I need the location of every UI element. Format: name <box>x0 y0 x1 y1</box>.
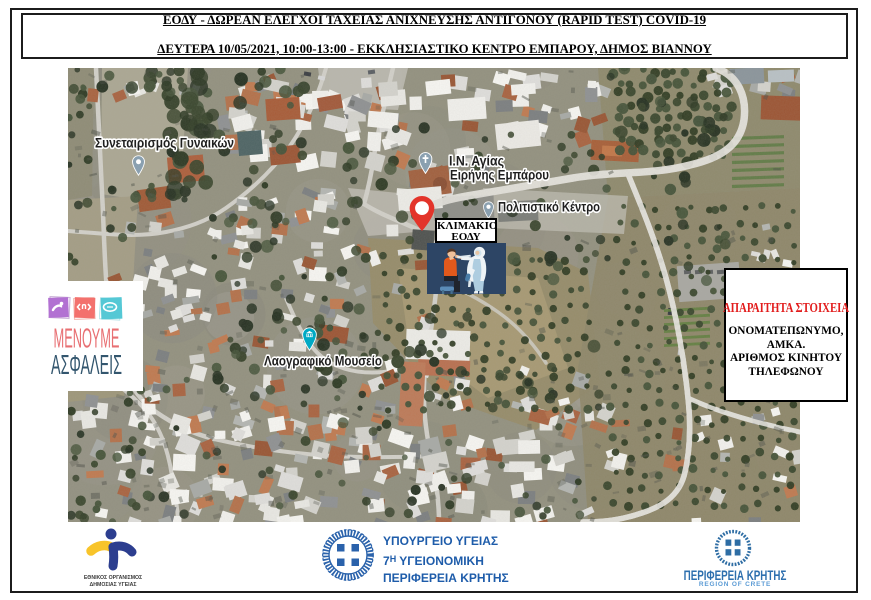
svg-text:ΕΘΝΙΚΟΣ ΟΡΓΑΝΙΣΜΟΣ: ΕΘΝΙΚΟΣ ΟΡΓΑΝΙΣΜΟΣ <box>84 575 142 581</box>
svg-text:ΜΕΝΟΥΜΕ: ΜΕΝΟΥΜΕ <box>54 324 120 351</box>
svg-text:Συνεταιρισμός Γυναικών: Συνεταιρισμός Γυναικών <box>95 136 234 151</box>
svg-text:Λαογραφικό Μουσείο: Λαογραφικό Μουσείο <box>264 354 382 369</box>
svg-text:ΑΣΦΑΛΕΙΣ: ΑΣΦΑΛΕΙΣ <box>51 350 122 377</box>
svg-text:ΔΗΜΟΣΙΑΣ ΥΓΕΙΑΣ: ΔΗΜΟΣΙΑΣ ΥΓΕΙΑΣ <box>90 582 137 588</box>
svg-text:Πολιτιστικό Κέντρο: Πολιτιστικό Κέντρο <box>498 200 600 215</box>
svg-text:Ειρήνης Εμπάρου: Ειρήνης Εμπάρου <box>450 168 549 183</box>
